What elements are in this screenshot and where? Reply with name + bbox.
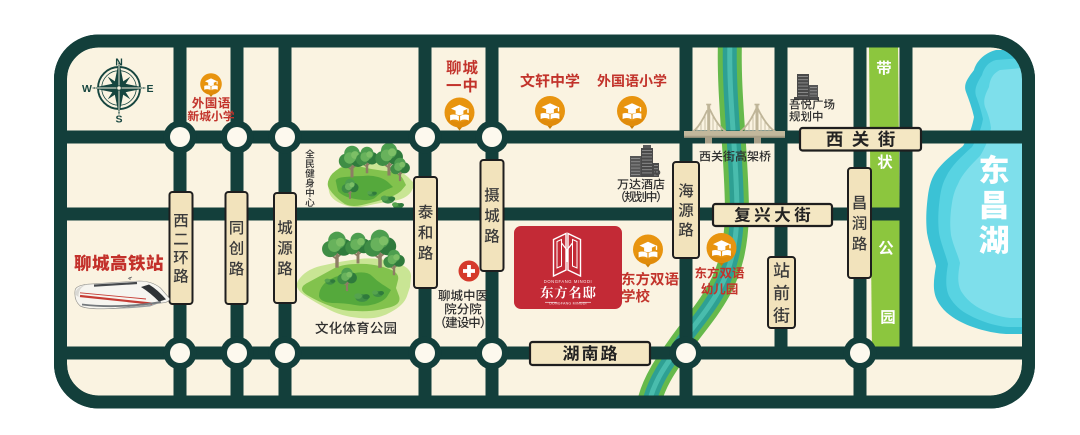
svg-text:W: W <box>82 83 92 95</box>
svg-text:S: S <box>115 114 122 126</box>
svg-text:E: E <box>146 83 153 95</box>
svg-text:DONGFANG MINGDI: DONGFANG MINGDI <box>549 301 587 305</box>
svg-text:N: N <box>115 57 123 69</box>
svg-text:DONGFANG MINGDI: DONGFANG MINGDI <box>544 279 593 284</box>
